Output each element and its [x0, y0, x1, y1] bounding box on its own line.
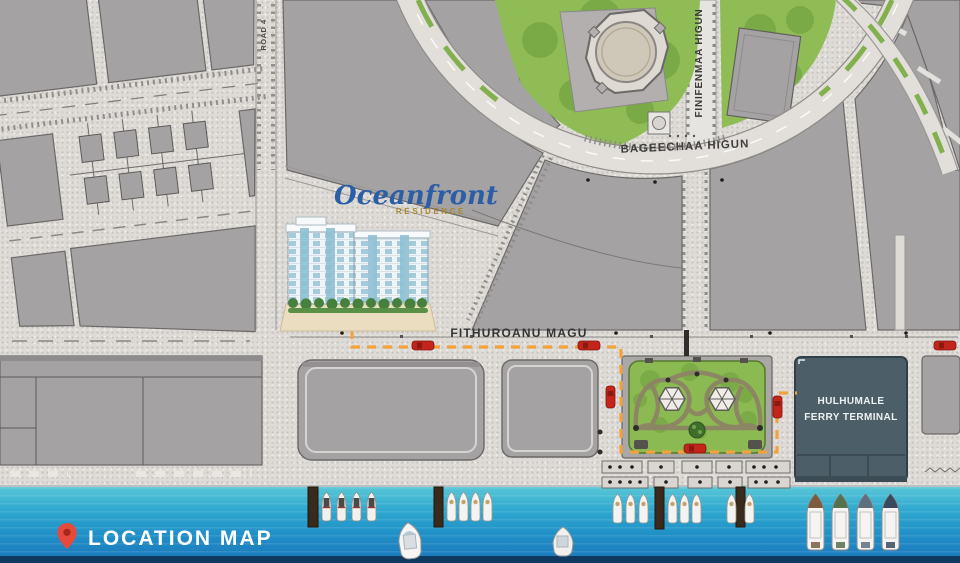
park-tree [689, 422, 705, 438]
location-map-poster: ROAD 4 FINIFENMAA HIGUN BAGEECHAA HIGUN … [0, 0, 960, 563]
location-pin-icon [57, 523, 77, 554]
map-illustration [0, 0, 960, 563]
waterfront-park [622, 356, 772, 458]
octagon-monument [560, 8, 668, 112]
block-b [502, 360, 603, 457]
ferry-terminal-label: HULHUMALE FERRY TERMINAL [799, 394, 903, 425]
dock-sawtooth [925, 468, 960, 472]
location-map-title: LOCATION MAP [57, 523, 273, 554]
oceanfront-logo: Oceanfront RESIDENCE [334, 183, 476, 216]
finifenmaa-higun-label: FINIFENMAA HIGUN [694, 7, 708, 119]
block-a [298, 360, 484, 460]
topleft-blocks [0, 0, 302, 360]
ferries [807, 494, 899, 550]
docked-boats [322, 492, 754, 523]
left-compound [0, 356, 262, 474]
fithuroanu-magu-label: FITHUROANU MAGU [424, 326, 614, 340]
location-map-label: LOCATION MAP [88, 527, 273, 551]
moving-boats [397, 522, 573, 560]
promenade-kiosks [602, 461, 790, 488]
right-block [922, 356, 960, 434]
building-rendering [280, 217, 436, 331]
logo-name: Oceanfront [334, 183, 476, 209]
mini-roundabout [648, 112, 670, 134]
road4-label: ROAD 4 [259, 5, 273, 65]
